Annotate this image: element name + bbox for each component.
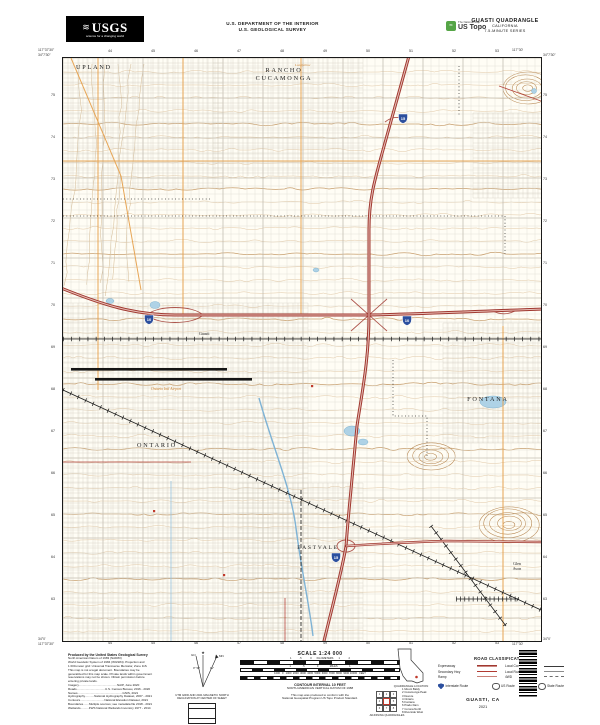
interstate-shield-icon — [438, 683, 444, 689]
usgs-logo-text: USGS — [92, 21, 128, 34]
grid-northing: 71 — [543, 261, 547, 265]
sheet-name: GUASTI, CA — [433, 698, 533, 703]
usgs-logo: ≋ USGS science for a changing world — [66, 16, 144, 42]
grid-northing: 70 — [543, 303, 547, 307]
legend-shield-item: US Route — [492, 683, 515, 690]
svg-text:MN: MN — [219, 654, 224, 658]
svg-text:★: ★ — [201, 650, 205, 655]
grid-northing: 66 — [51, 471, 55, 475]
usgs-topo-sheet: ≋ USGS science for a changing world U.S.… — [0, 0, 600, 725]
grid-northing: 75 — [543, 93, 547, 97]
grid-northing: 72 — [51, 219, 55, 223]
usgs-logo-row: ≋ USGS — [82, 21, 128, 34]
corner-top-left-lat: 34°7'30" — [38, 53, 51, 57]
corner-bottom-left-lat: 34°0' — [38, 637, 46, 641]
grid-easting: 44 — [108, 49, 112, 53]
grid-northing: 69 — [51, 345, 55, 349]
legend-shield-item: State Route — [538, 683, 564, 691]
grid-northing: 72 — [543, 219, 547, 223]
grid-northing: 63 — [51, 597, 55, 601]
department-heading: U.S. DEPARTMENT OF THE INTERIOR U.S. GEO… — [165, 21, 380, 33]
map-area: 10 10 15 15 UPLAND RANCHO — [62, 57, 542, 642]
barcode — [519, 650, 537, 697]
legend-shield-label: State Route — [547, 684, 564, 688]
grid-easting: 45 — [151, 49, 155, 53]
corner-top-right-lat: 34°7'30" — [543, 53, 556, 57]
grid-easting: 52 — [452, 49, 456, 53]
legend-road-swatch — [477, 665, 497, 667]
grid-easting: 46 — [194, 49, 198, 53]
svg-text:10: 10 — [147, 317, 152, 322]
grid-northing: 64 — [543, 555, 547, 559]
corner-bottom-right-lat: 34°0' — [543, 637, 551, 641]
adjoining-quadrangles-grid: 12345678 — [376, 691, 397, 712]
svg-text:11°: 11° — [210, 666, 214, 670]
usgs-tagline: science for a changing world — [86, 34, 124, 38]
label-avon: Avon — [513, 566, 522, 571]
label-fontana: FONTANA — [467, 396, 509, 403]
inset-box — [188, 703, 216, 724]
sheet-title-block: GUASTI, CA 2021 — [433, 698, 533, 709]
legend-columns: ExpresswaySecondary HwyRamp Local Connec… — [438, 664, 564, 680]
grid-easting: 47 — [237, 49, 241, 53]
grid-northing: 65 — [51, 513, 55, 517]
state-shield-icon — [538, 683, 546, 691]
adjoining-cell: 1 — [376, 691, 383, 698]
legend-road-swatch — [544, 676, 564, 677]
grid-northing: 65 — [543, 513, 547, 517]
grid-northing: 68 — [51, 387, 55, 391]
legend-road-label: 4WD — [505, 675, 512, 679]
inset-box-rule-bottom — [189, 718, 215, 719]
adjoining-cell: 2 — [383, 691, 390, 698]
label-ontario-airport: Ontario Intl Airport — [151, 387, 182, 391]
adjoining-cell: 4 — [376, 698, 383, 705]
legend-road-row: Ramp — [438, 674, 497, 679]
label-cucamonga: CUCAMONGA — [256, 75, 313, 82]
corner-top-right-lon: 117°30' — [512, 48, 523, 52]
grid-northing: 75 — [51, 93, 55, 97]
svg-text:10: 10 — [405, 318, 410, 323]
legend-road-label: Secondary Hwy — [438, 670, 460, 674]
adjoining-cell: 3 — [390, 691, 397, 698]
svg-text:0° 52': 0° 52' — [193, 666, 201, 670]
grid-northing: 66 — [543, 471, 547, 475]
label-longfellow: Longfellow — [294, 63, 311, 67]
grid-easting: 53 — [495, 49, 499, 53]
adjoining-cell: 5 — [390, 698, 397, 705]
adjoining-cell: 8 — [390, 705, 397, 712]
dept-line2: U.S. GEOLOGICAL SURVEY — [165, 27, 380, 33]
legend-title: ROAD CLASSIFICATION — [438, 656, 564, 661]
adjoining-cell-center — [383, 698, 390, 705]
corner-bottom-left-lon: 117°37'30" — [38, 642, 54, 646]
grid-northing: 64 — [51, 555, 55, 559]
grid-northing: 70 — [51, 303, 55, 307]
grid-easting: 48 — [280, 49, 284, 53]
adjoining-cell: 7 — [383, 705, 390, 712]
grid-northing: 74 — [51, 135, 55, 139]
corner-bottom-right-lon: 117°30' — [512, 642, 523, 646]
svg-text:15: 15 — [334, 555, 339, 560]
svg-text:GN: GN — [191, 653, 196, 657]
label-upland: UPLAND — [76, 64, 112, 71]
grid-northing: 73 — [543, 177, 547, 181]
grid-northing: 69 — [543, 345, 547, 349]
quadrangle-title: GUASTI QUADRANGLE CALIFORNIA 7.5-MINUTE … — [440, 18, 570, 34]
grid-northing: 74 — [543, 135, 547, 139]
grid-easting: 49 — [323, 49, 327, 53]
legend-road-swatch — [544, 666, 564, 667]
label-eastvale: EASTVALE — [297, 545, 339, 551]
legend-road-swatch — [477, 671, 497, 672]
grid-northing: 71 — [51, 261, 55, 265]
label-guasti: Guasti — [199, 331, 210, 336]
grid-northing: 73 — [51, 177, 55, 181]
grid-easting: 51 — [409, 49, 413, 53]
road-classification-legend: ROAD CLASSIFICATION ExpresswaySecondary … — [438, 656, 564, 690]
grid-northing: 67 — [543, 429, 547, 433]
us-shield-icon — [492, 683, 500, 690]
grid-northing: 68 — [543, 387, 547, 391]
usgs-wave-icon: ≋ — [82, 23, 90, 32]
legend-shield-item: Interstate Route — [438, 683, 468, 689]
svg-text:15: 15 — [401, 116, 406, 121]
quad-series: 7.5-MINUTE SERIES — [440, 29, 570, 34]
california-outline — [396, 648, 426, 684]
label-rancho: RANCHO — [266, 67, 303, 74]
grid-northing: 67 — [51, 429, 55, 433]
label-ontario: ONTARIO — [137, 442, 177, 449]
declination-diagram: ★ GN MN 0° 52' 11° — [176, 649, 230, 693]
grid-easting: 50 — [366, 49, 370, 53]
legend-shield-label: Interstate Route — [446, 684, 469, 688]
adjoining-quadrangles-caption: ADJOINING QUADRANGLES — [352, 714, 422, 717]
legend-route-shields: Interstate RouteUS RouteState Route — [438, 683, 564, 691]
scale-bar-feet — [240, 676, 400, 680]
legend-road-label: Expressway — [438, 664, 455, 668]
inset-box-rule-top — [189, 708, 215, 709]
legend-road-swatch — [544, 671, 564, 672]
corner-top-left-lon: 117°37'30" — [38, 48, 54, 52]
legend-road-swatch — [477, 676, 497, 677]
legend-column-left: ExpresswaySecondary HwyRamp — [438, 664, 497, 680]
grid-northing: 63 — [543, 597, 547, 601]
sheet-year: 2021 — [433, 705, 533, 709]
quad-location-dot — [415, 676, 418, 679]
legend-road-label: Ramp — [438, 675, 447, 679]
adjoining-quad-name: 8 Riverside West — [402, 711, 442, 714]
adjoining-cell: 6 — [376, 705, 383, 712]
map-canvas: 10 10 15 15 UPLAND RANCHO — [63, 58, 541, 641]
legend-shield-label: US Route — [501, 684, 515, 688]
